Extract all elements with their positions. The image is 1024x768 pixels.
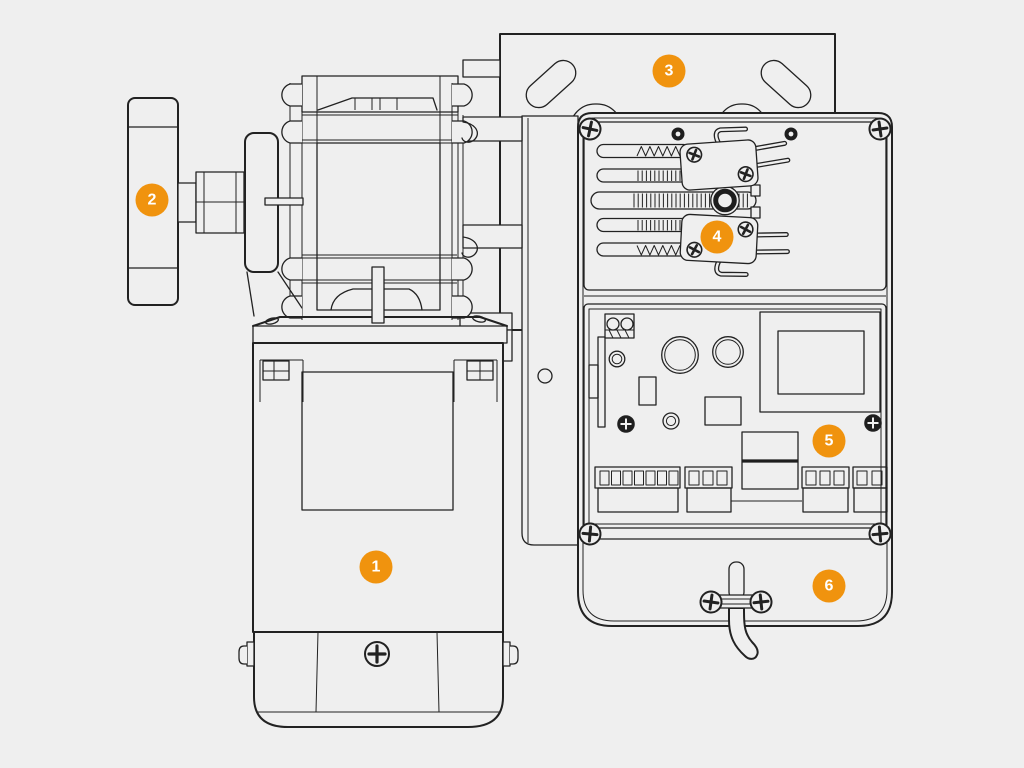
motor-assembly-drawing [0, 0, 1024, 768]
callout-number: 6 [825, 577, 834, 595]
diagram-stage: 1 2 3 4 5 6 [0, 0, 1024, 768]
callout-number: 3 [665, 62, 674, 80]
callout-badge-plate: 3 [653, 55, 686, 88]
shaft-key [265, 198, 303, 205]
motor-housing [253, 343, 503, 632]
clamp-screw [749, 590, 772, 613]
cover-screw [869, 523, 892, 546]
callout-badge-motor: 1 [360, 551, 393, 584]
callout-number: 5 [825, 432, 834, 450]
limit-adjust-nut [711, 186, 739, 214]
end-cap-screw [365, 642, 389, 666]
callout-badge-cable: 6 [813, 570, 846, 603]
cover-screw [579, 523, 602, 546]
callout-badge-pulley: 2 [136, 184, 169, 217]
callout-badge-limit-switch: 4 [701, 221, 734, 254]
panel-hole [672, 128, 685, 141]
side-flange-plate [522, 116, 578, 545]
callout-badge-board: 5 [813, 425, 846, 458]
callout-number: 4 [713, 228, 722, 246]
panel-hole [785, 128, 798, 141]
pulley-hub [178, 183, 196, 222]
control-enclosure-drawing [578, 113, 892, 659]
motor-drawing [239, 315, 518, 727]
callout-number: 1 [372, 558, 381, 576]
pcb-screw [618, 416, 635, 433]
callout-number: 2 [148, 191, 157, 209]
pcb-screw [865, 415, 882, 432]
